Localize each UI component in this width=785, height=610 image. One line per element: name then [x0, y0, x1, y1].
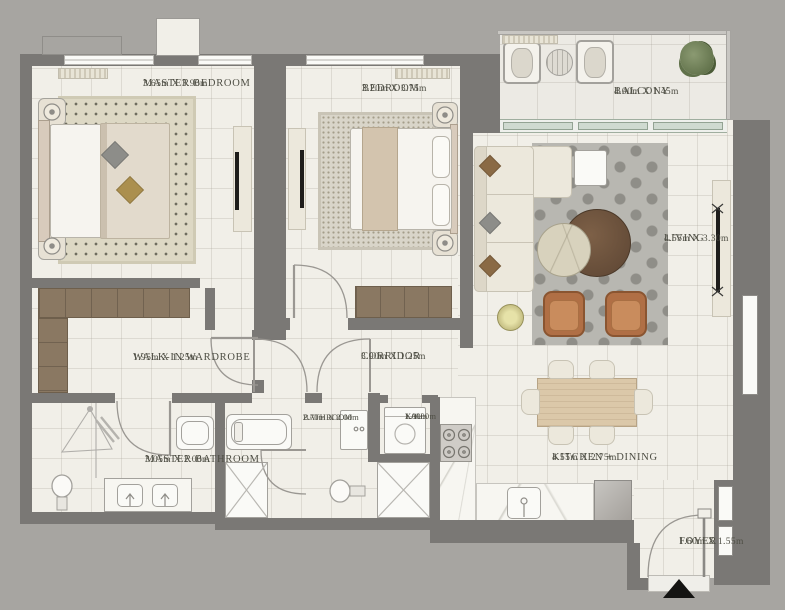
master-bed-headboard [38, 120, 50, 242]
living-tv-unit [712, 180, 731, 317]
balcony-plant [680, 41, 714, 75]
wall-corridor-bottom-1 [32, 393, 115, 403]
room-dims: X 1.00m [405, 411, 436, 422]
master-window-1 [64, 55, 154, 65]
wall-lau-left [368, 393, 380, 462]
master-tv [235, 152, 239, 210]
side-table-round [497, 304, 524, 331]
master-sink-2 [152, 484, 178, 507]
wall-corridor-bottom-3 [305, 393, 322, 403]
wardrobe-unit-left [38, 318, 68, 393]
wall-bedroom-living [460, 66, 473, 348]
living-tv [716, 208, 720, 292]
wall-left [20, 54, 32, 524]
balcony-glass-panel-1 [503, 122, 573, 130]
balcony-glass-panel-2 [578, 122, 648, 130]
wall-bedroom-divider [254, 66, 286, 340]
room-dims: 3.90m X 1.25m [361, 351, 426, 363]
fridge [594, 480, 632, 523]
balcony-parapet-right [726, 30, 731, 120]
dining-chair-top-2 [589, 360, 615, 379]
dining-chair-top-1 [548, 360, 574, 379]
balcony-chair-1-cushion [511, 48, 533, 78]
wall-column-balcony [472, 54, 500, 133]
balcony-chair-2-cushion [584, 47, 606, 78]
room-dims: 4.00m X 1.45m [614, 86, 679, 98]
dining-table [537, 378, 637, 427]
entrance-threshold [648, 575, 710, 592]
shaft-left [225, 462, 268, 518]
wall-bedroom-bottom-right [348, 318, 460, 330]
wall-bottom-left [20, 512, 225, 524]
room-dims: 3.20m X 3.75m [362, 83, 427, 95]
armchair-2-seat [611, 300, 641, 331]
master-window-shade [58, 68, 108, 79]
wall-suite-jamb-top [252, 330, 264, 340]
wall-bedroom-bottom-left [286, 318, 290, 330]
stove [440, 424, 472, 462]
bedroom-wardrobe [355, 286, 452, 318]
floor-plan: MASTER BEDROOM 3.65m X 3.90m BEDROOM 3.2… [0, 0, 785, 610]
bedroom-pillow-2 [432, 184, 450, 226]
master-sink-1 [117, 484, 143, 507]
bedroom-window-shade [395, 68, 450, 79]
room-dims: 3.65m X 3.90m [143, 78, 208, 90]
balcony-glass-panel-3 [653, 122, 723, 130]
wall-lau-top-left [380, 395, 388, 403]
dining-chair-bottom-2 [589, 426, 615, 445]
bedroom-window [306, 55, 424, 65]
room-dims: 4.55m X 3.30m [664, 233, 729, 245]
master-window-2 [198, 55, 252, 65]
bedroom-pillow-1 [432, 136, 450, 178]
wall-bottom-kitchen [430, 520, 634, 543]
wall-lau-bottom [368, 454, 430, 462]
dining-chair-bottom-1 [548, 426, 574, 445]
armchair-1-seat [549, 300, 579, 331]
wall-master-bottom [32, 278, 200, 288]
bedroom-bed-duvet [362, 127, 398, 231]
kitchen-sink [507, 487, 541, 519]
balcony-sill-texture [502, 35, 558, 44]
wall-niche-right [742, 295, 758, 395]
wall-suite-jamb-bottom [252, 380, 264, 393]
shaft-right [377, 462, 430, 518]
foyer-niche-1 [718, 486, 733, 521]
bathtub-headrest [234, 422, 243, 442]
dining-chair-left [521, 389, 540, 415]
room-dims: 2.70m X 2.00m [303, 412, 359, 423]
dining-chair-right [634, 389, 653, 415]
floor-foyer [634, 480, 714, 578]
wall-bottom-mid [215, 518, 438, 530]
room-dims: 3.05m X 2.00m [145, 454, 210, 466]
balcony-parapet-top [497, 30, 731, 35]
bedroom-tv [300, 150, 304, 208]
balcony-table [546, 49, 573, 76]
parapet-outline-topleft [42, 36, 122, 55]
coffee-table-marble [537, 223, 591, 277]
wall-foyer-bottom-left [627, 578, 648, 590]
room-dims: 1.95m X 1.25m [133, 352, 198, 364]
wall-corridor-bottom-2 [172, 393, 252, 403]
master-bathtub-inner [181, 421, 209, 445]
wall-suite-upper [205, 288, 215, 330]
sofa-ottoman [574, 150, 607, 186]
room-dims: 1.60m X 1.55m [679, 536, 744, 548]
room-dims: 4.55m X 2.75m [552, 452, 617, 464]
duct-box-top [156, 18, 200, 56]
wardrobe-unit-top [38, 288, 190, 318]
